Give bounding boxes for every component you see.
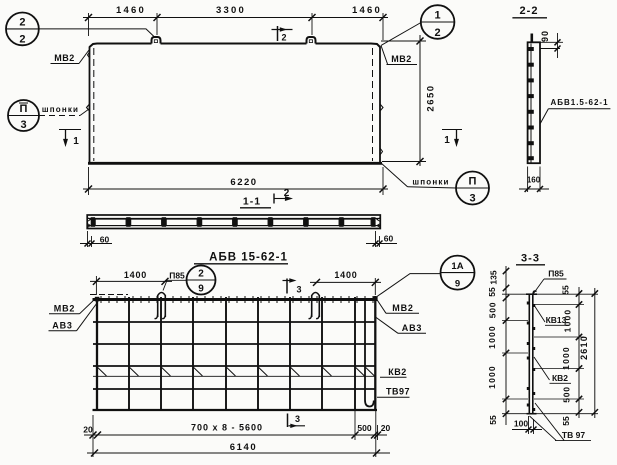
svg-text:20: 20	[381, 423, 391, 433]
svg-text:2610: 2610	[579, 335, 589, 360]
svg-text:3-3: 3-3	[521, 253, 540, 265]
svg-text:1460: 1460	[116, 5, 146, 16]
svg-text:КВ2: КВ2	[552, 373, 568, 383]
svg-text:6140: 6140	[230, 442, 258, 453]
svg-text:500: 500	[562, 386, 572, 403]
svg-text:2: 2	[281, 33, 286, 43]
svg-text:135: 135	[489, 270, 499, 284]
svg-text:КВ13: КВ13	[546, 315, 567, 325]
svg-text:1460: 1460	[352, 5, 382, 16]
svg-text:3: 3	[469, 193, 475, 205]
svg-text:МВ2: МВ2	[54, 53, 75, 63]
svg-text:П85: П85	[169, 271, 185, 281]
svg-text:3: 3	[295, 414, 300, 424]
svg-text:500: 500	[488, 302, 498, 319]
svg-text:20: 20	[83, 425, 93, 435]
svg-text:700 x 8 - 5600: 700 x 8 - 5600	[191, 423, 263, 433]
svg-text:100: 100	[514, 419, 528, 429]
svg-text:П: П	[469, 176, 477, 188]
svg-text:П85: П85	[548, 269, 564, 279]
svg-text:2: 2	[435, 27, 441, 39]
svg-text:МВ2: МВ2	[392, 303, 413, 313]
svg-text:2: 2	[198, 269, 204, 280]
svg-text:55: 55	[488, 415, 498, 425]
svg-text:2: 2	[19, 33, 25, 45]
svg-text:3: 3	[20, 119, 26, 131]
svg-text:1: 1	[435, 10, 441, 22]
svg-text:3: 3	[296, 285, 301, 295]
svg-text:шпонки: шпонки	[412, 178, 449, 187]
svg-text:6220: 6220	[230, 177, 257, 188]
svg-text:55: 55	[561, 285, 571, 295]
svg-text:1-1: 1-1	[243, 196, 261, 208]
svg-text:1А: 1А	[451, 261, 463, 272]
svg-text:55: 55	[487, 287, 497, 297]
svg-text:9: 9	[455, 279, 460, 290]
svg-text:2: 2	[284, 188, 290, 199]
svg-text:АБВ 15-62-1: АБВ 15-62-1	[209, 252, 288, 264]
svg-text:АВ3: АВ3	[52, 321, 72, 331]
svg-text:МВ2: МВ2	[391, 54, 412, 64]
svg-text:60: 60	[384, 234, 394, 244]
svg-text:500: 500	[357, 423, 371, 433]
svg-text:2650: 2650	[426, 84, 437, 111]
svg-text:60: 60	[100, 235, 110, 245]
svg-text:ТВ 97: ТВ 97	[562, 430, 585, 440]
svg-text:3300: 3300	[216, 5, 246, 16]
svg-text:90: 90	[540, 30, 550, 42]
svg-text:55: 55	[561, 416, 571, 426]
svg-text:1000: 1000	[561, 346, 571, 370]
svg-text:АВ3: АВ3	[402, 323, 422, 333]
svg-text:9: 9	[198, 284, 204, 295]
svg-text:2: 2	[19, 16, 25, 28]
svg-text:ТВ97: ТВ97	[386, 387, 410, 397]
svg-text:П: П	[20, 103, 28, 115]
svg-text:МВ2: МВ2	[54, 304, 75, 314]
svg-text:1: 1	[73, 136, 79, 147]
svg-text:1400: 1400	[334, 270, 357, 280]
svg-text:2-2: 2-2	[520, 5, 539, 17]
svg-text:КВ2: КВ2	[388, 367, 407, 377]
svg-text:1400: 1400	[124, 270, 147, 280]
svg-text:шпонки: шпонки	[42, 105, 79, 114]
svg-text:АБВ1.5-62-1: АБВ1.5-62-1	[550, 98, 608, 107]
svg-text:1000: 1000	[487, 325, 497, 349]
svg-text:1000: 1000	[487, 365, 497, 389]
svg-text:1: 1	[444, 135, 450, 146]
svg-text:160: 160	[527, 176, 541, 185]
